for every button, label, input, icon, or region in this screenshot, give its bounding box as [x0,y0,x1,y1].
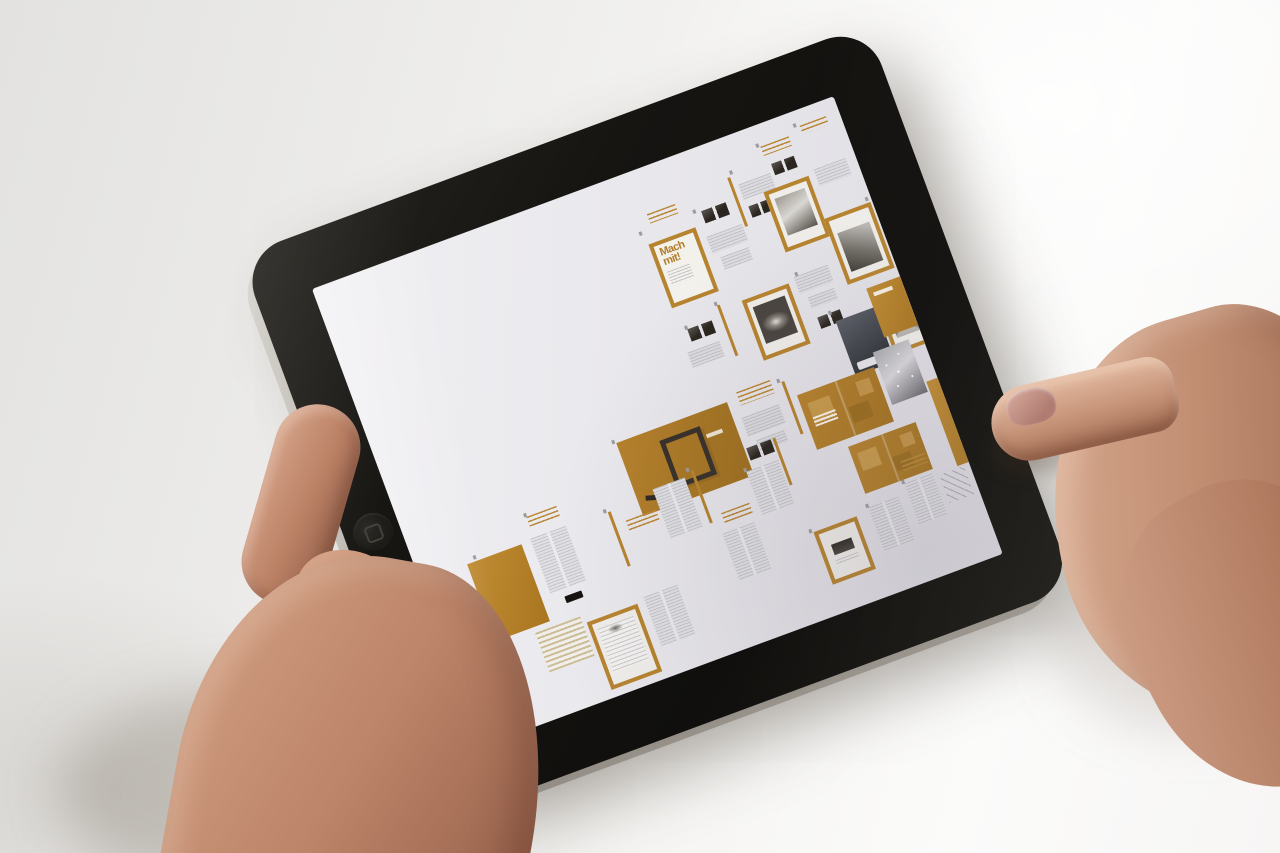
section-heading [647,204,679,224]
text-block [814,158,852,187]
photo [774,188,818,236]
section-heading [800,116,829,134]
page-number-mark [808,529,812,534]
section-heading [526,506,560,528]
photo-thumbnails [701,202,730,223]
photo-thumbnails [771,156,798,176]
page-number-mark [729,170,733,175]
page-thumbnail-orange[interactable] [926,371,985,466]
photo-thumbnails [746,439,775,460]
page-thumbnail-photo-car[interactable] [742,283,811,360]
spine-divider [781,381,803,435]
text-block [687,341,724,368]
chart-block [535,616,595,672]
image-strip [564,590,583,603]
cover-title: Mach mit! [658,236,699,267]
text-column [868,497,914,551]
photo [753,296,798,344]
photo [824,528,863,567]
text-column [643,585,695,646]
page-number-mark [611,440,615,445]
page-number-mark [865,197,869,202]
page-number-mark [603,509,607,514]
photo-thumbnails [687,320,716,341]
text-block [808,288,838,309]
text-column [722,522,771,581]
photo [598,616,650,673]
tables-overhead-photo [660,426,718,488]
text-column [530,526,586,594]
page-number-mark [776,379,780,384]
page-thumbnail-photo-ad[interactable] [813,516,876,584]
home-icon [363,522,385,544]
section-heading [721,503,753,525]
scene: Mach mit! [0,0,1280,853]
page-thumbnail-photo-mountain[interactable] [824,202,895,285]
section-heading [736,380,775,406]
page-number-mark [755,143,759,148]
legend-symbols [939,466,974,503]
section-heading [760,136,792,156]
text-column [746,460,794,515]
page-number-mark [473,555,477,560]
page-number-mark [639,231,643,236]
page-number-mark [692,209,696,214]
photo [837,222,883,272]
page-number-mark [793,123,797,128]
text-block [720,247,753,270]
